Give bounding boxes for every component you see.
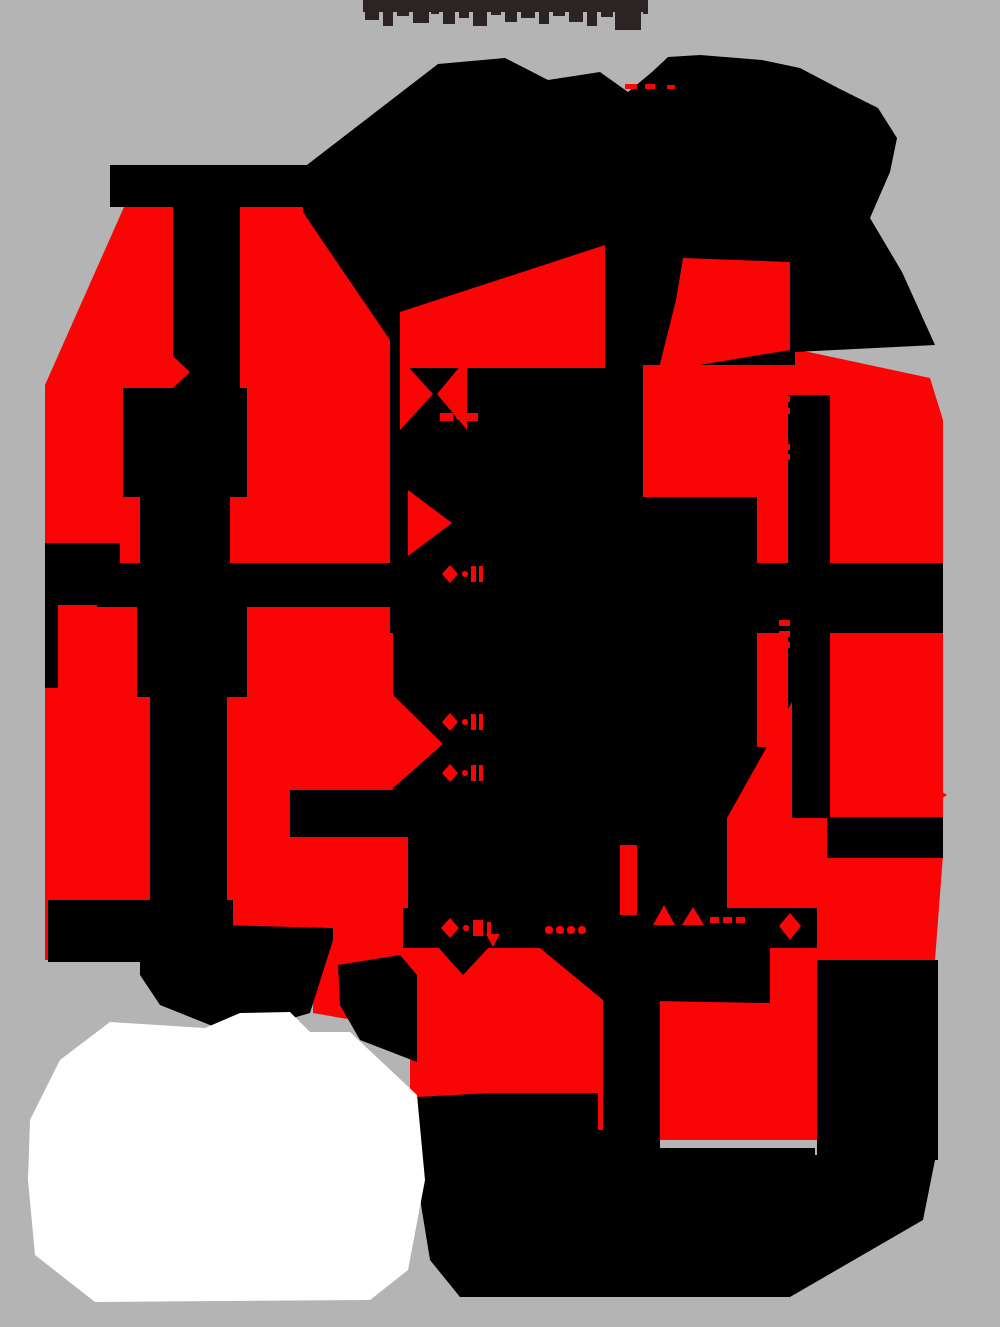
marker-bar bbox=[471, 566, 476, 582]
marker-bar bbox=[471, 714, 476, 730]
marker-bar bbox=[479, 714, 483, 730]
marker-dash bbox=[467, 413, 478, 421]
map-canvas bbox=[0, 0, 1000, 1327]
top-edge-dash bbox=[645, 84, 655, 89]
marker-dot bbox=[462, 719, 468, 725]
marker-bar bbox=[487, 922, 491, 934]
title-glyph-tooth bbox=[431, 0, 439, 14]
title-glyph-tooth bbox=[539, 0, 549, 24]
black-center-bar-mid bbox=[605, 240, 633, 330]
title-glyph-tooth bbox=[643, 0, 648, 14]
marker-dash bbox=[723, 917, 732, 923]
title-glyph-tooth bbox=[365, 0, 379, 20]
marker-dash bbox=[710, 917, 719, 923]
black-west-knob2 bbox=[137, 607, 247, 697]
marker-dot-row bbox=[545, 926, 553, 934]
marker-dash bbox=[736, 917, 745, 923]
bar-mark bbox=[779, 454, 790, 460]
marker-dot-row bbox=[578, 926, 586, 934]
marker-bar bbox=[471, 765, 476, 781]
white-basin bbox=[28, 1012, 425, 1302]
marker-dot bbox=[463, 925, 469, 931]
title-glyph-tooth bbox=[521, 0, 535, 18]
bar-mark bbox=[779, 386, 790, 392]
title-glyph-tooth bbox=[413, 0, 429, 23]
black-center-right-step bbox=[643, 497, 757, 565]
bar-mark bbox=[779, 444, 790, 450]
title-glyph-tooth bbox=[601, 0, 613, 17]
title-glyph-tooth bbox=[459, 0, 469, 18]
red-slot bbox=[620, 845, 637, 915]
title-glyph-tooth bbox=[587, 0, 597, 26]
top-edge-dash bbox=[667, 85, 675, 89]
black-east-block-b bbox=[817, 960, 938, 1160]
black-t-bar-north bbox=[110, 165, 307, 207]
black-west-sliver bbox=[45, 603, 58, 688]
black-east-block-a bbox=[827, 817, 943, 858]
black-west-bridge bbox=[97, 563, 400, 607]
bar-mark bbox=[779, 642, 790, 648]
marker-square bbox=[473, 920, 483, 936]
black-west-knob bbox=[123, 388, 247, 497]
title-glyph-tooth bbox=[491, 0, 501, 15]
title-glyph-tooth bbox=[473, 0, 487, 26]
marker-dash bbox=[440, 413, 453, 421]
black-west-column-lower bbox=[150, 697, 227, 928]
title-glyph-tooth bbox=[443, 0, 455, 24]
bar-mark bbox=[779, 408, 790, 414]
top-edge-dash bbox=[625, 84, 637, 89]
marker-bar bbox=[479, 566, 483, 582]
bar-mark bbox=[779, 620, 790, 626]
bar-mark bbox=[779, 631, 790, 637]
screenshot-root bbox=[0, 0, 1000, 1327]
marker-dot bbox=[462, 571, 468, 577]
marker-bar bbox=[479, 765, 483, 781]
black-t-stem-north bbox=[173, 203, 240, 392]
black-south-t-stem bbox=[603, 1000, 660, 1145]
title-glyph-tooth bbox=[553, 0, 565, 16]
black-west-stub bbox=[290, 790, 408, 837]
title-glyph-tooth bbox=[397, 0, 409, 16]
marker-dot-row bbox=[556, 926, 564, 934]
title-glyph-tooth bbox=[569, 0, 583, 22]
title-glyph-tooth bbox=[383, 0, 393, 26]
bar-mark bbox=[779, 396, 790, 402]
marker-dot bbox=[456, 414, 462, 420]
marker-dot-row bbox=[567, 926, 575, 934]
marker-dot bbox=[462, 770, 468, 776]
title-glyph-tooth bbox=[615, 0, 641, 30]
title-glyph-tooth bbox=[505, 0, 517, 22]
